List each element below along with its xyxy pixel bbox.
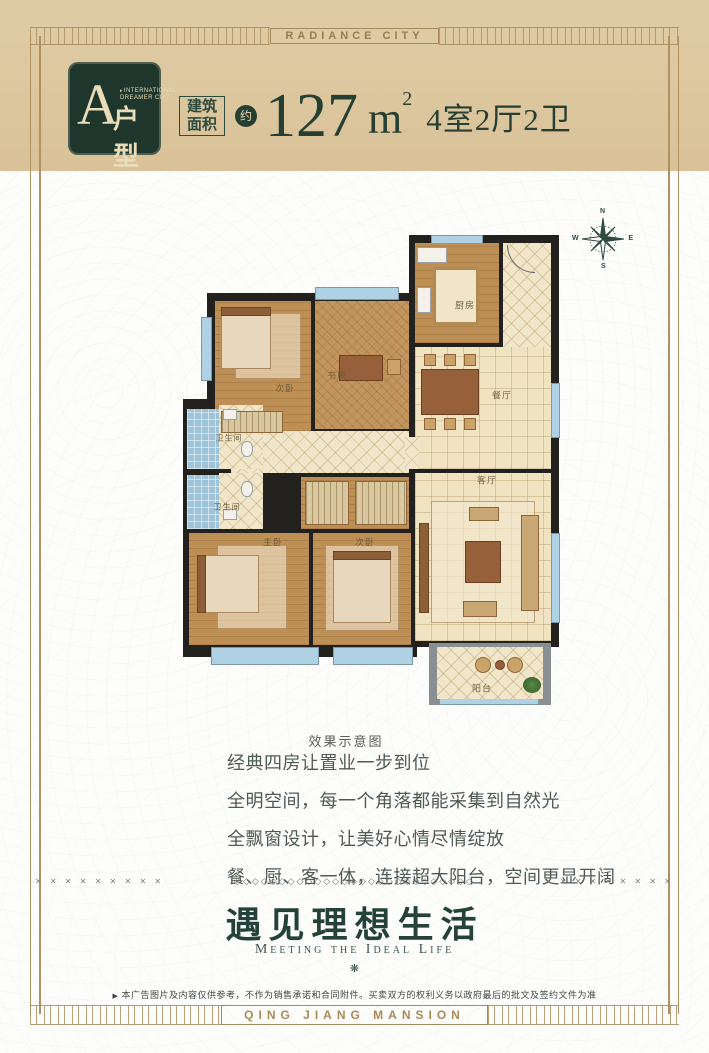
label-bedroom-second: 次卧: [355, 536, 375, 549]
unit-type-label: 户型: [113, 99, 161, 173]
feature-line: 全飘窗设计，让美好心情尽情绽放: [227, 820, 616, 858]
slogan-title: 遇见理想生活: [0, 896, 709, 948]
compass-west-label: W: [572, 235, 579, 242]
coffee-table: [465, 541, 501, 583]
ornamental-divider: ✕ ✕ ✕ ✕ ✕ ✕ ✕ ✕ ✕ ◇◇◇◇◇◇◇◇◇◇◇◇◇◈◇◇◇◇◇◇◇◇…: [35, 874, 674, 888]
dining-chair: [424, 418, 436, 430]
compass-rose-icon: N E S W: [574, 210, 632, 268]
wardrobe: [355, 481, 407, 525]
kitchen-appliance: [417, 247, 447, 263]
room-count-text: 4室2厅2卫: [426, 94, 572, 139]
disclaimer-marker-icon: ▶: [113, 992, 119, 1000]
fret-pattern: [30, 27, 270, 45]
study-chair: [387, 359, 401, 375]
top-border-band: RADIANCE CITY: [30, 28, 679, 44]
bed-headboard: [333, 551, 391, 560]
divider-left: ✕ ✕ ✕ ✕ ✕ ✕ ✕ ✕ ✕: [35, 877, 164, 886]
floor-plan: 厨房 餐厅 客厅 书房 次卧 主卧 次卧 卫生间 卫生间 阳台: [183, 233, 565, 707]
fret-pattern: [439, 27, 679, 45]
divider-chain: ◇◇◇◇◇◇◇◇◇◇◇◇◇◈◇◇◇◇◇◇◇◇◇◇◇◇◇: [164, 876, 545, 887]
bottom-border-band: QING JIANG MANSION: [30, 1006, 679, 1024]
kitchen-counter: [433, 267, 479, 325]
armchair: [463, 601, 497, 617]
dining-chair: [424, 354, 436, 366]
fret-pattern: [488, 1005, 679, 1025]
area-value: 127: [265, 86, 358, 146]
window: [551, 383, 560, 438]
toilet: [241, 441, 253, 457]
wardrobe: [305, 481, 349, 525]
divider-right: ✕ ✕ ✕ ✕ ✕ ✕ ✕ ✕ ✕: [545, 877, 674, 886]
label-living: 客厅: [477, 474, 497, 487]
label-kitchen: 厨房: [455, 299, 475, 312]
dining-chair: [464, 418, 476, 430]
bay-window: [211, 647, 319, 665]
sofa: [521, 515, 539, 611]
label-master: 主卧: [263, 536, 283, 549]
bottom-banner-title: QING JIANG MANSION: [221, 1005, 488, 1025]
bedroom-second-bed: [333, 551, 391, 623]
bed-headboard: [221, 307, 271, 316]
bedroom-top-bed: [221, 307, 271, 369]
balcony-plant: [523, 677, 541, 693]
hallway-opening: [405, 437, 419, 469]
built-area-label: 建筑 面积: [179, 96, 225, 136]
dining-chair: [444, 418, 456, 430]
fret-pattern: [30, 1005, 221, 1025]
bed-headboard: [197, 555, 206, 613]
label-balcony: 阳台: [472, 682, 492, 695]
poster-page: RADIANCE CITY A ▸INTERNATIONAL DREAMER C…: [0, 0, 709, 1053]
built-area-line1: 建筑: [180, 98, 224, 116]
bay-window: [333, 647, 413, 665]
label-bedroom-top: 次卧: [275, 382, 295, 395]
frame-line: [30, 36, 31, 1014]
compass-south-label: S: [601, 263, 606, 270]
label-bath-upper: 卫生间: [216, 433, 243, 444]
slogan-subtitle: Meeting the Ideal Life: [0, 942, 709, 958]
balcony-table: [495, 660, 505, 670]
disclaimer: ▶本广告图片及内容仅供参考，不作为销售承诺和合同附件。买卖双方的权利义务以政府最…: [40, 988, 669, 1001]
armchair: [469, 507, 499, 521]
compass-east-label: E: [628, 235, 633, 242]
bay-window: [315, 287, 399, 300]
window: [201, 317, 212, 381]
brand-line1: INTERNATIONAL: [124, 88, 177, 94]
dining-chair: [464, 354, 476, 366]
frame-line: [668, 36, 670, 1014]
area-row: 建筑 面积 约 127 m2 4室2厅2卫: [179, 86, 572, 146]
feature-line: 经典四房让置业一步到位: [227, 744, 616, 782]
tv-cabinet: [419, 523, 429, 613]
dining-table: [421, 369, 479, 415]
flower-ornament-icon: ❋: [0, 962, 709, 975]
master-bed: [197, 555, 259, 613]
frame-line: [39, 36, 41, 1014]
top-banner-title: RADIANCE CITY: [270, 28, 438, 44]
label-dining: 餐厅: [492, 389, 512, 402]
compass-north-label: N: [600, 208, 605, 215]
feature-line: 全明空间，每一个角落都能采集到自然光: [227, 782, 616, 820]
approx-seal: 约: [235, 105, 257, 127]
dining-chair: [444, 354, 456, 366]
window: [551, 533, 560, 623]
sink: [223, 409, 237, 420]
balcony-chair: [475, 657, 491, 673]
brand-marker-icon: ▸: [120, 88, 123, 94]
built-area-line2: 面积: [180, 116, 224, 134]
toilet: [241, 481, 253, 497]
bath-upper-shower: [187, 409, 219, 469]
disclaimer-text: 本广告图片及内容仅供参考，不作为销售承诺和合同附件。买卖双方的权利义务以政府最后…: [121, 990, 596, 1000]
label-bath-lower: 卫生间: [214, 502, 241, 513]
label-study: 书房: [327, 369, 347, 382]
frame-line: [678, 36, 679, 1014]
balcony-chair: [507, 657, 523, 673]
area-unit: m2: [368, 88, 412, 144]
kitchen-sink: [417, 287, 431, 313]
unit-type-badge: A ▸INTERNATIONAL DREAMER CITY 户型: [68, 62, 161, 155]
